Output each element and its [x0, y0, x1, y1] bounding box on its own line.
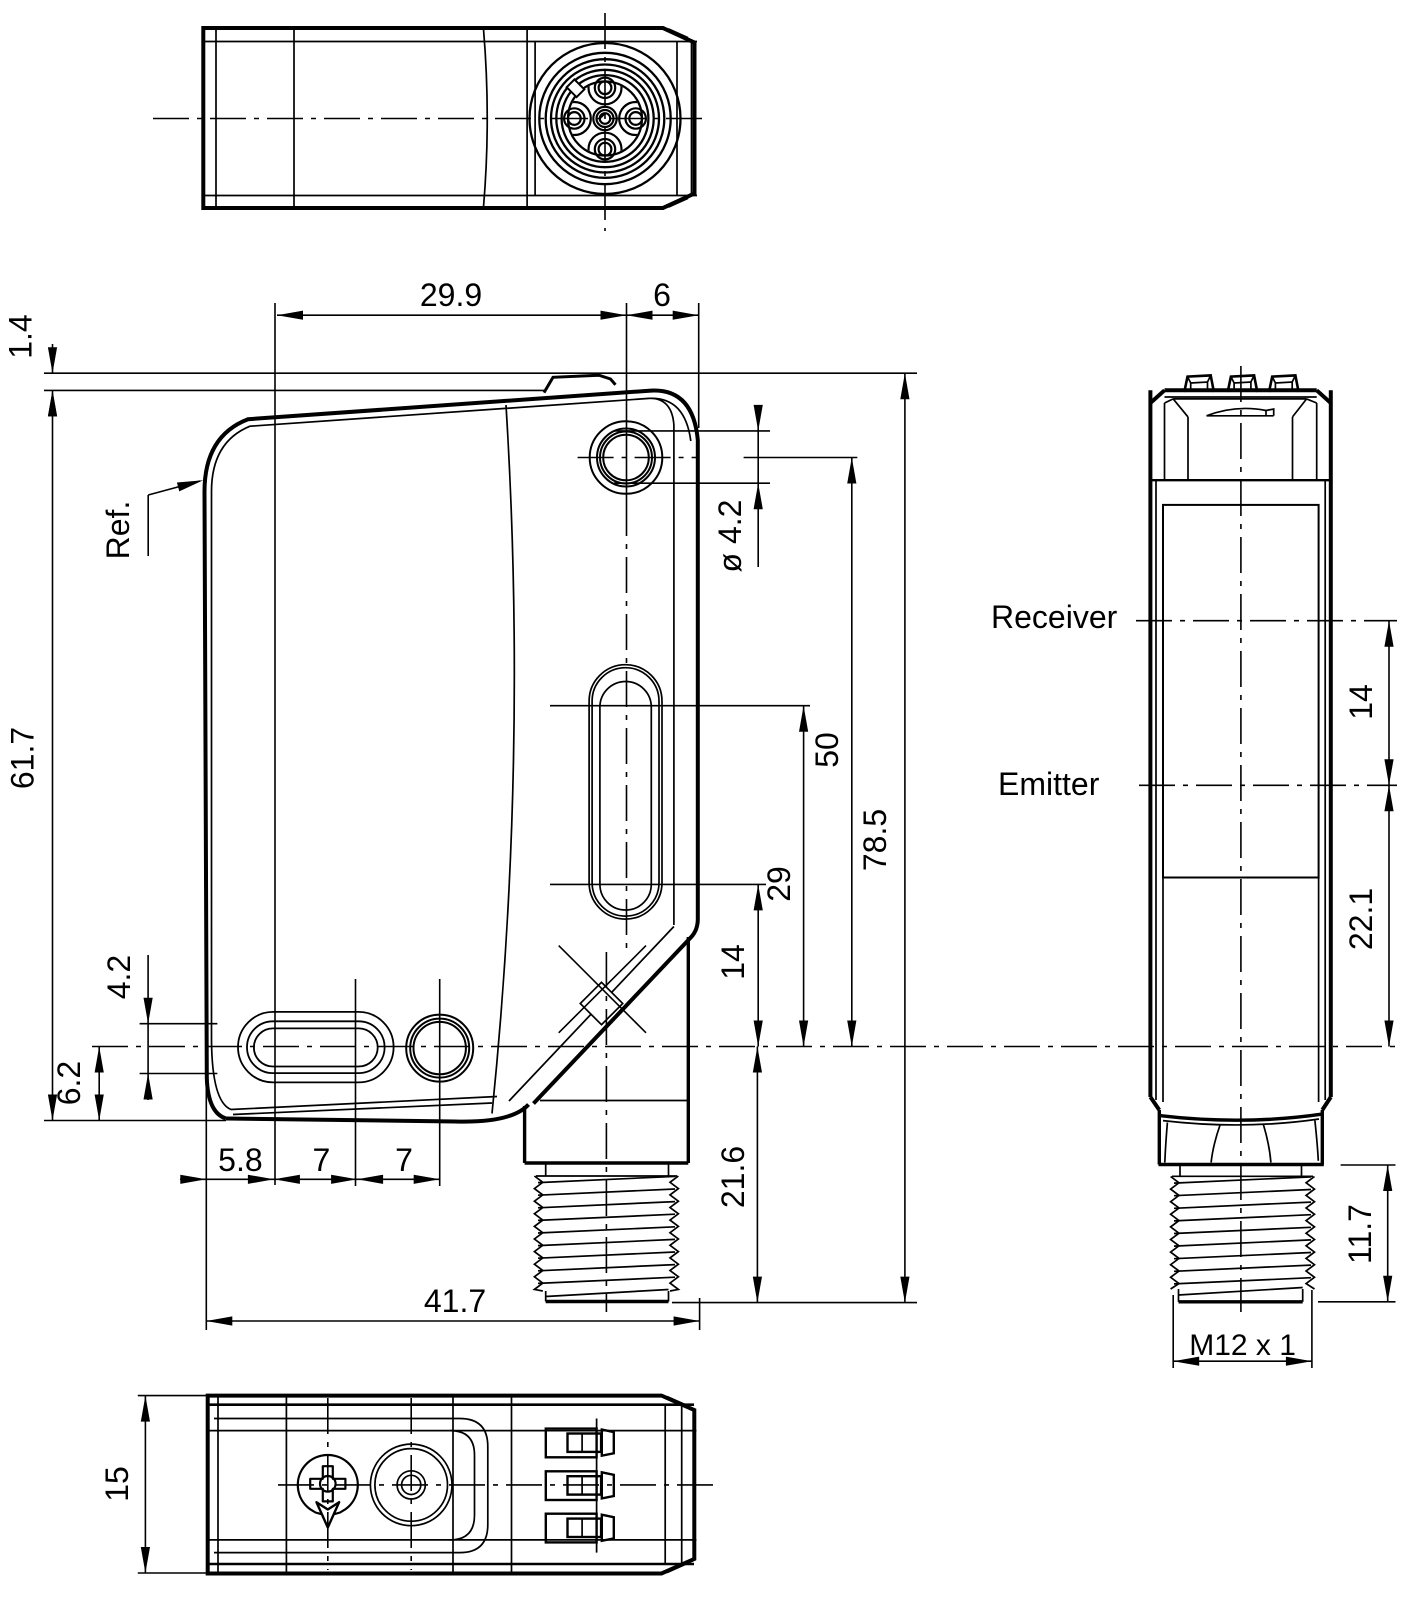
svg-text:7: 7 — [395, 1142, 413, 1178]
svg-text:5.8: 5.8 — [218, 1142, 262, 1178]
svg-text:50: 50 — [809, 732, 845, 768]
svg-text:6: 6 — [653, 277, 671, 313]
svg-text:7: 7 — [313, 1142, 331, 1178]
svg-text:Ref.: Ref. — [100, 501, 136, 560]
svg-text:Receiver: Receiver — [991, 599, 1118, 635]
svg-text:78.5: 78.5 — [857, 809, 893, 871]
svg-text:14: 14 — [715, 944, 751, 980]
svg-text:29.9: 29.9 — [420, 277, 482, 313]
svg-text:11.7: 11.7 — [1342, 1204, 1378, 1264]
svg-text:14: 14 — [1343, 684, 1379, 720]
svg-text:6.2: 6.2 — [51, 1061, 87, 1105]
svg-text:1.4: 1.4 — [3, 314, 39, 358]
svg-text:4.2: 4.2 — [101, 955, 137, 999]
svg-text:ø 4.2: ø 4.2 — [712, 500, 748, 573]
svg-text:22.1: 22.1 — [1343, 888, 1379, 950]
svg-text:M12 x 1: M12 x 1 — [1189, 1329, 1296, 1362]
svg-text:29: 29 — [761, 866, 797, 902]
svg-text:21.6: 21.6 — [715, 1146, 751, 1208]
svg-text:41.7: 41.7 — [424, 1283, 486, 1319]
svg-text:61.7: 61.7 — [5, 727, 41, 789]
svg-text:15: 15 — [99, 1466, 135, 1502]
svg-text:Emitter: Emitter — [998, 766, 1100, 802]
